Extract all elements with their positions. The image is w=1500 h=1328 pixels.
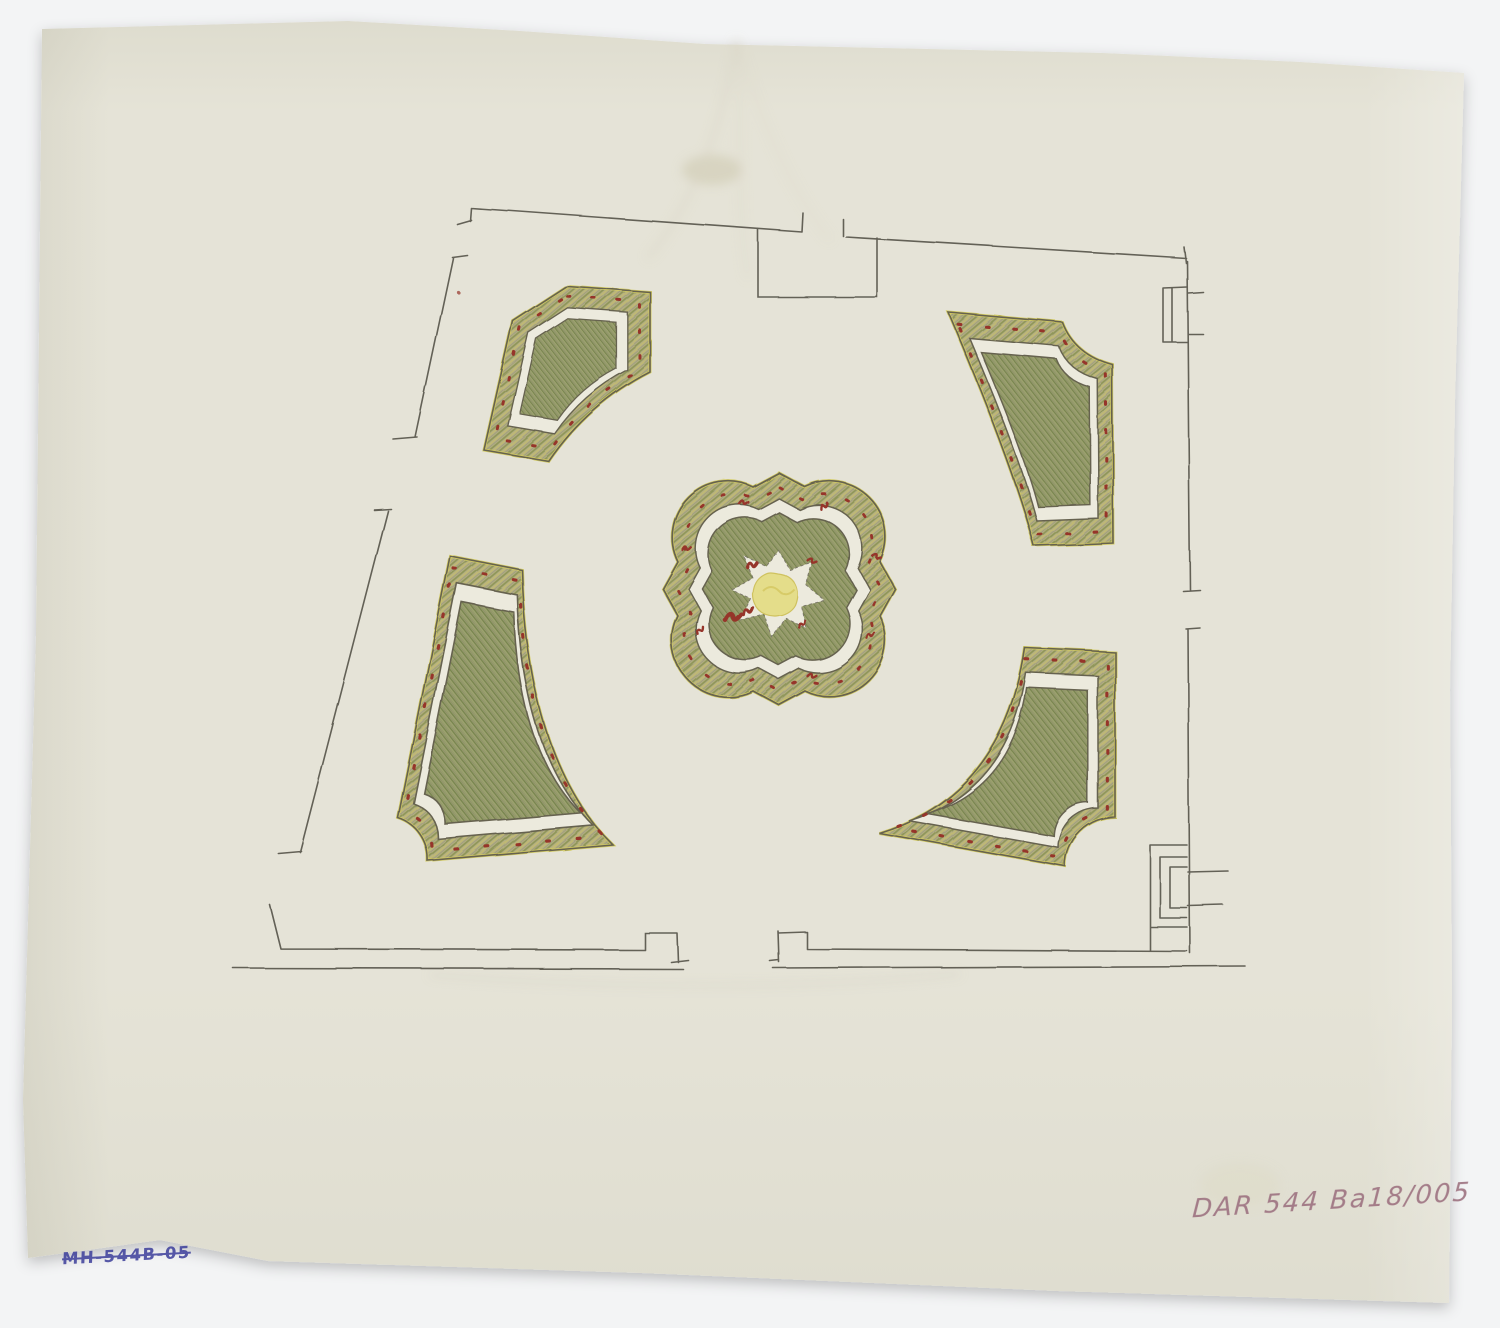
fountain-water-yellow: [752, 572, 797, 616]
garden-plan-svg: [0, 0, 1500, 1328]
page-background: DAR 544 Ba18/005 MH-544B-05: [0, 0, 1500, 1328]
